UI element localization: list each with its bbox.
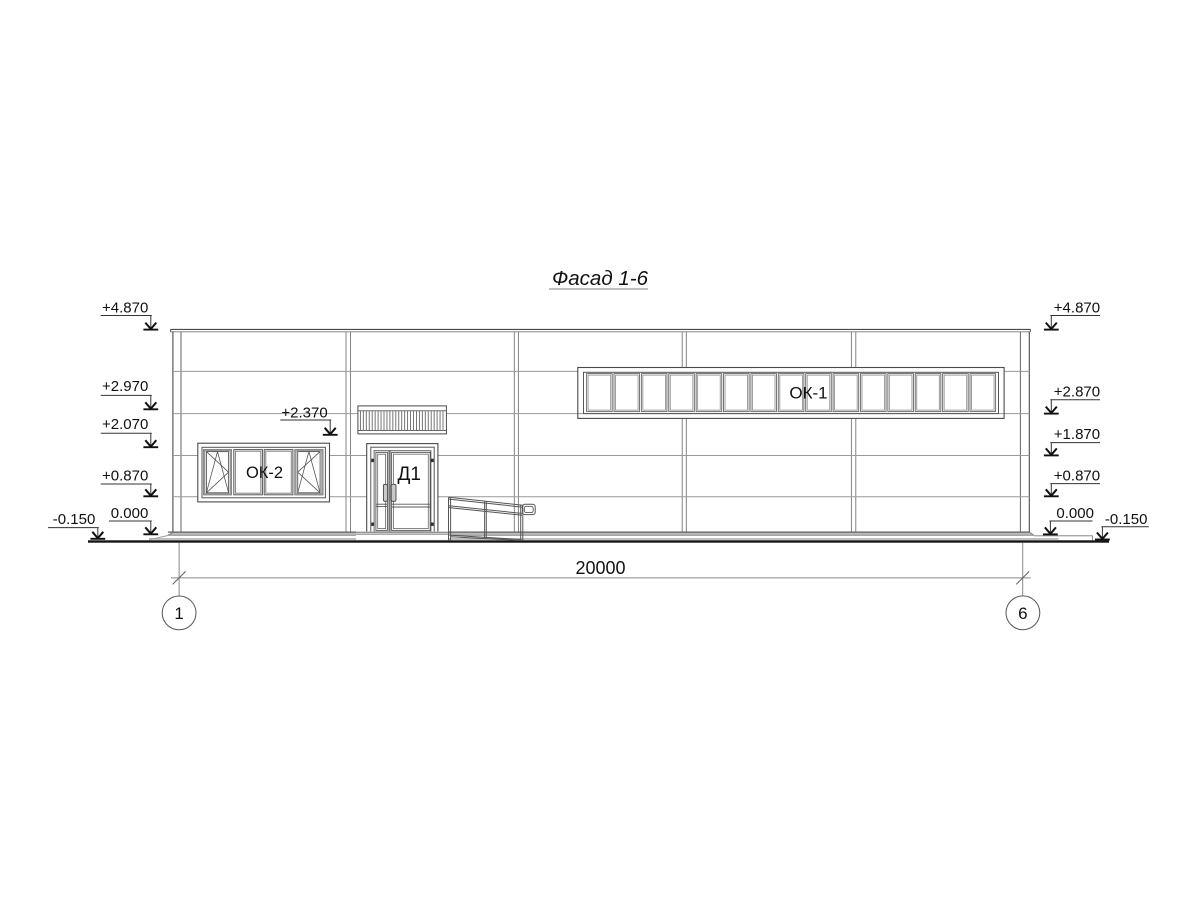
svg-text:+2.870: +2.870 [1054, 384, 1100, 401]
svg-text:-0.150: -0.150 [1105, 511, 1148, 528]
svg-text:+0.870: +0.870 [1054, 467, 1100, 484]
svg-text:0.000: 0.000 [111, 505, 149, 522]
svg-text:+0.870: +0.870 [102, 467, 148, 484]
svg-text:Фасад 1-6: Фасад 1-6 [552, 267, 649, 290]
svg-text:6: 6 [1018, 604, 1027, 623]
svg-text:Д1: Д1 [397, 464, 420, 485]
svg-text:+2.370: +2.370 [281, 405, 327, 422]
svg-text:+1.870: +1.870 [1054, 426, 1100, 443]
svg-text:ОК-1: ОК-1 [789, 384, 827, 403]
svg-text:0.000: 0.000 [1056, 505, 1094, 522]
svg-text:+2.970: +2.970 [102, 378, 148, 395]
svg-text:-0.150: -0.150 [53, 511, 96, 528]
svg-text:+4.870: +4.870 [102, 299, 148, 316]
svg-text:20000: 20000 [575, 558, 625, 578]
svg-text:+2.070: +2.070 [102, 416, 148, 433]
svg-text:1: 1 [174, 604, 183, 623]
svg-text:+4.870: +4.870 [1054, 299, 1100, 316]
svg-text:ОК-2: ОК-2 [246, 464, 283, 482]
